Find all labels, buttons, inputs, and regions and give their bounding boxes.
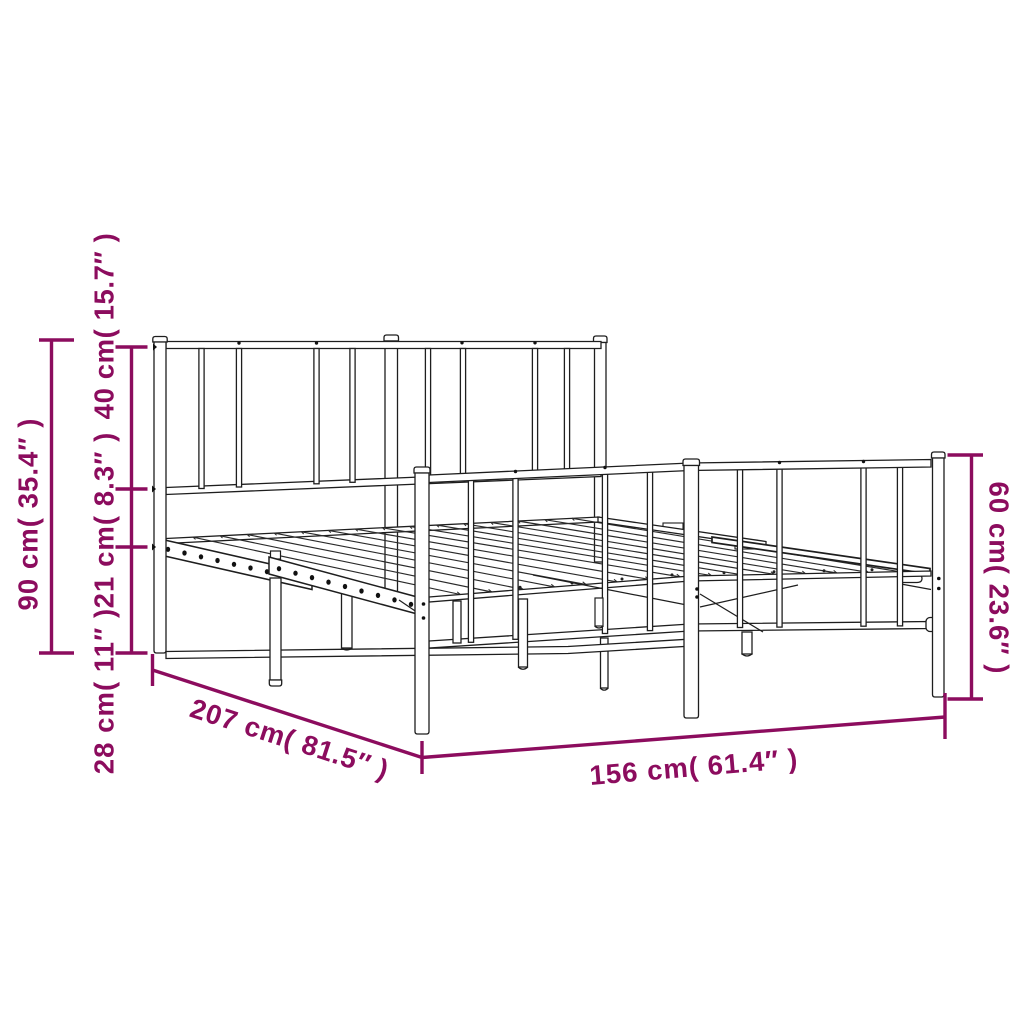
svg-text:28 cm( 11″ ): 28 cm( 11″ ) <box>88 608 119 774</box>
svg-text:90 cm( 35.4″ ): 90 cm( 35.4″ ) <box>12 418 43 611</box>
svg-text:21 cm( 8.3″ ): 21 cm( 8.3″ ) <box>88 432 119 609</box>
svg-text:40 cm( 15.7″ ): 40 cm( 15.7″ ) <box>88 233 119 420</box>
svg-text:60 cm( 23.6″ ): 60 cm( 23.6″ ) <box>984 482 1015 675</box>
